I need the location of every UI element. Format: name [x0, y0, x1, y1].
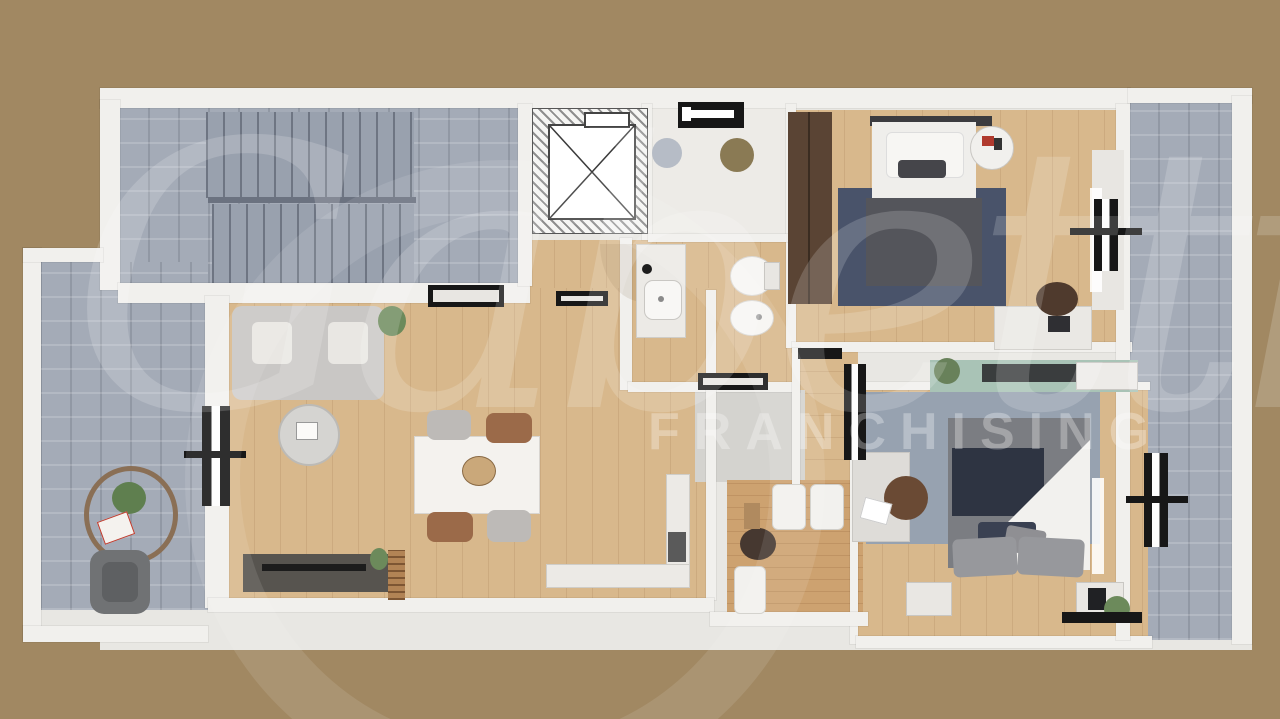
bedroom2-nightstand-left [906, 582, 952, 616]
wall-wing-outer [23, 248, 41, 640]
elevator-cab [548, 124, 636, 220]
bidet [730, 300, 774, 336]
wall-terrace-bottom [710, 612, 868, 626]
entry-plant [720, 138, 754, 172]
wall-living-right [706, 290, 716, 600]
wall-wing-bottom [23, 626, 208, 642]
bedroom1-window-tick [1070, 228, 1142, 235]
bedroom2-console-plant [934, 358, 960, 384]
corridor-window-symbol [844, 364, 866, 460]
dining-chair-bottom-left [427, 512, 473, 542]
bedroom1-blanket [866, 198, 982, 286]
stairs-lower-flight [212, 204, 414, 288]
side-table-deco-dark [994, 138, 1002, 150]
bedroom1-window-symbol [1094, 199, 1118, 271]
dining-chair-bottom-right [487, 510, 531, 542]
sideboard-plant [370, 548, 388, 570]
sofa-cushion-left [252, 322, 292, 364]
stair-window-a [428, 285, 504, 307]
bedroom1-desk [994, 306, 1092, 350]
terrace-side-table [744, 503, 760, 529]
terrace-lounger-1 [772, 484, 806, 530]
sofa-plant [378, 306, 406, 336]
toilet-tank [764, 262, 780, 290]
kitchen-appliance [668, 532, 686, 562]
wall-elevator-left [518, 104, 532, 286]
wall-bedroom2-bottom [856, 636, 1152, 648]
bedroom1-wardrobe [788, 112, 832, 304]
bedroom2-pillow-right [1017, 536, 1085, 577]
balcony-armchair-seat [102, 562, 138, 602]
terrace-beanbag [740, 528, 776, 560]
coffee-table-deco [296, 422, 318, 440]
wall-living-bottom [208, 598, 714, 612]
papasan-plant [112, 482, 146, 514]
entry-mirror [652, 138, 682, 168]
corridor-door-symbol [798, 348, 842, 359]
bedroom2-window-tick [1126, 496, 1188, 503]
elevator-x-icon [550, 126, 634, 218]
bidet-faucet [756, 314, 762, 320]
tv-sideboard [243, 554, 389, 592]
bedroom1-wardrobe-line [808, 112, 810, 304]
bedroom2-desk-chair [884, 476, 928, 520]
bedroom2-console-deco [1076, 362, 1138, 390]
side-table-deco-red [982, 136, 994, 146]
balcony-door-tick [184, 451, 246, 458]
stairs-upper-flight [206, 112, 414, 198]
stairs-landing-rail [208, 197, 416, 203]
wall-hall-bath [648, 234, 788, 242]
bedroom1-desk-chair [1036, 282, 1078, 316]
tv-screen [262, 564, 366, 571]
wall-right-outer [1232, 96, 1252, 644]
dining-chair-top-left [427, 410, 471, 440]
ladder-shelf [388, 550, 405, 600]
sofa-cushion-right [328, 322, 368, 364]
terrace-lounger-3 [734, 566, 766, 614]
entry-door-slot [688, 110, 734, 118]
table-centerpiece [462, 456, 496, 486]
dining-chair-top-right [486, 413, 532, 443]
entry-door-hinge [682, 107, 691, 121]
wall-wing-top [23, 248, 103, 262]
bedroom2-curtain [1092, 478, 1104, 574]
kitchen-counter-horizontal [546, 564, 690, 588]
bedroom2-tv [982, 364, 1078, 382]
bedroom2-pillow-left [952, 536, 1018, 577]
elevator-counterweight [584, 112, 630, 128]
bedroom2-bench-dark [1062, 612, 1142, 623]
floor-plan-render: Gabetti FRANCHISING [0, 0, 1280, 719]
bathroom-door-symbol [698, 373, 768, 390]
bathroom-dark-deco [642, 264, 652, 274]
wall-top-main [100, 88, 1130, 108]
bedroom1-laptop [1048, 316, 1070, 332]
bedroom1-cushion [898, 160, 946, 178]
stair-window-b [556, 291, 608, 306]
bedroom1-side-table [970, 126, 1014, 170]
terrace-lounger-2 [810, 484, 844, 530]
wall-left-main [100, 100, 120, 290]
sink-faucet [658, 296, 664, 302]
